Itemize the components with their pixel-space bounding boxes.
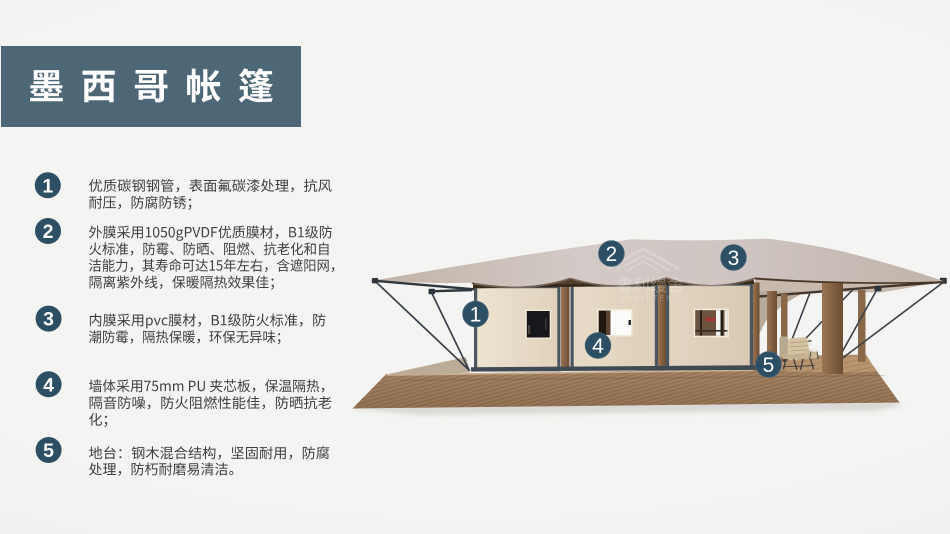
svg-text:5: 5 [43,440,54,462]
svg-text:2: 2 [43,221,54,243]
svg-text:2: 2 [606,243,618,266]
svg-text:1: 1 [42,175,53,197]
svg-text:4: 4 [592,335,604,358]
svg-text:3: 3 [728,247,740,270]
svg-text:4: 4 [43,374,54,396]
svg-text:5: 5 [763,354,775,377]
svg-text:XUELI TENT: XUELI TENT [621,294,679,303]
svg-text:1: 1 [470,304,482,327]
svg-text:3: 3 [43,309,54,331]
